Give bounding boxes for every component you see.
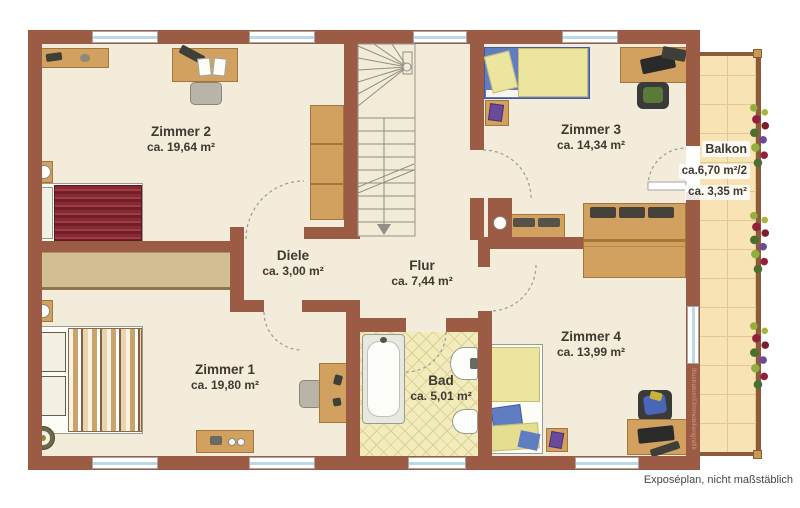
- room-area: ca. 19,80 m²: [145, 378, 305, 392]
- room-label-flur: Flur ca. 7,44 m²: [362, 258, 482, 289]
- room-name: Diele: [233, 248, 353, 264]
- room-name: Zimmer 1: [145, 362, 305, 378]
- room-name: Bad: [381, 373, 501, 389]
- stairs-and-doors-overlay: [0, 0, 800, 508]
- room-name: Balkon: [702, 141, 750, 157]
- illustrator-watermark: Illustration©Immobiliengrafik: [687, 368, 697, 460]
- room-area: ca. 7,44 m²: [362, 274, 482, 288]
- room-label-zimmer2: Zimmer 2 ca. 19,64 m²: [101, 124, 261, 155]
- floor-plan: Zimmer 2 ca. 19,64 m² Zimmer 1 ca. 19,80…: [0, 0, 800, 508]
- room-area: ca. 5,01 m²: [381, 389, 501, 403]
- room-name: Flur: [362, 258, 482, 274]
- room-area: ca. 19,64 m²: [101, 140, 261, 154]
- room-name: Zimmer 4: [511, 329, 671, 345]
- room-name: Zimmer 2: [101, 124, 261, 140]
- room-area: ca. 3,00 m²: [233, 264, 353, 278]
- room-label-diele: Diele ca. 3,00 m²: [233, 248, 353, 279]
- room-label-zimmer1: Zimmer 1 ca. 19,80 m²: [145, 362, 305, 393]
- room-area: ca. 13,99 m²: [511, 345, 671, 359]
- footer-note: Exposéplan, nicht maßstäblich: [644, 474, 793, 486]
- room-label-zimmer4: Zimmer 4 ca. 13,99 m²: [511, 329, 671, 360]
- room-area: ca.6,70 m²/2: [679, 164, 750, 179]
- room-label-balkon: Balkon ca.6,70 m²/2 ca. 3,35 m²: [620, 139, 750, 201]
- room-label-bad: Bad ca. 5,01 m²: [381, 373, 501, 404]
- room-name: Zimmer 3: [511, 122, 671, 138]
- room-area: ca. 3,35 m²: [685, 185, 750, 200]
